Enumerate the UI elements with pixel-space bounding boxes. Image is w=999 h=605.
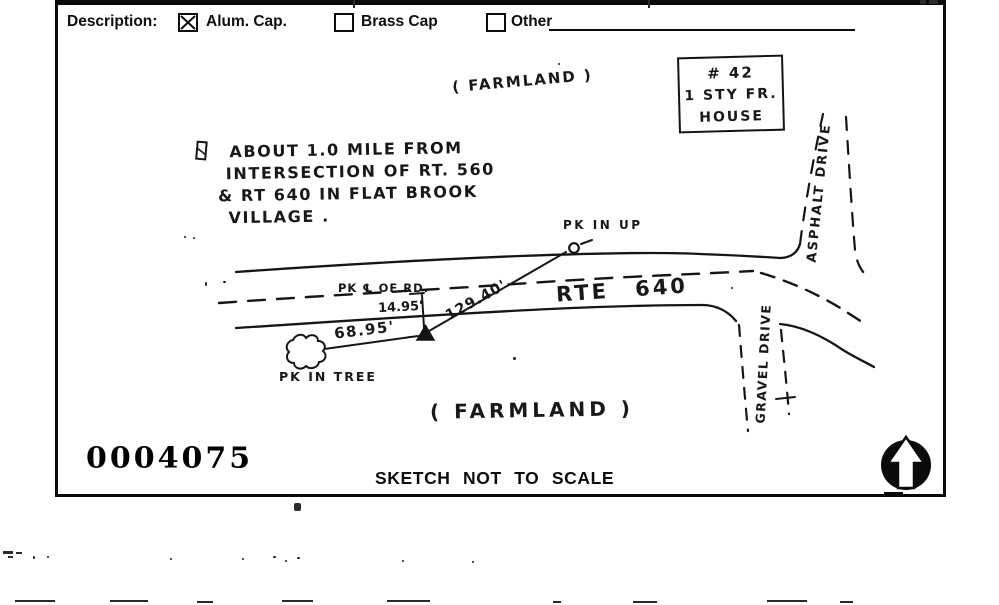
ink-speck (205, 282, 207, 286)
ink-speck (193, 237, 195, 239)
scan-artifact (767, 600, 807, 602)
scale-note: SKETCH NOT TO SCALE (375, 468, 614, 489)
scan-artifact (297, 557, 300, 559)
scan-artifact (170, 558, 172, 560)
asphalt-drive-edges (800, 114, 864, 273)
scan-artifact (387, 600, 430, 602)
scan-artifact (402, 560, 404, 562)
scan-artifact (472, 561, 474, 563)
scan-artifact (840, 601, 853, 603)
scan-artifact (110, 600, 148, 602)
note-marker-icon (196, 142, 206, 160)
scan-artifact (3, 551, 13, 554)
ink-speck (184, 236, 186, 238)
ink-speck (223, 281, 226, 283)
pk-nail-circle-icon (569, 243, 579, 253)
monument-triangle-icon (417, 326, 434, 341)
scan-artifact (8, 556, 13, 558)
scan-artifact (33, 556, 35, 559)
ink-speck (731, 287, 733, 289)
scan-artifact (273, 556, 276, 558)
scan-artifact (285, 560, 287, 562)
scanned-survey-sketch: Description: Alum. Cap. Brass Cap Other … (0, 0, 999, 605)
scan-artifact (15, 600, 55, 602)
tree-icon (287, 335, 326, 369)
ink-speck (558, 63, 560, 65)
scan-artifact (242, 558, 244, 560)
tie-lines (317, 240, 592, 350)
scan-artifact (282, 600, 313, 602)
scan-artifact (16, 552, 22, 554)
sketch-linework (0, 0, 999, 605)
stamp-number: 0004075 (86, 442, 253, 476)
north-arrow-icon (881, 437, 931, 493)
scan-artifact (553, 601, 561, 603)
scan-artifact (633, 601, 657, 603)
gravel-drive-edges (739, 325, 795, 431)
ink-speck (513, 357, 516, 360)
scan-artifact (294, 503, 301, 511)
scan-artifact (47, 556, 49, 558)
ink-speck (408, 336, 410, 338)
scan-artifact (197, 601, 213, 603)
